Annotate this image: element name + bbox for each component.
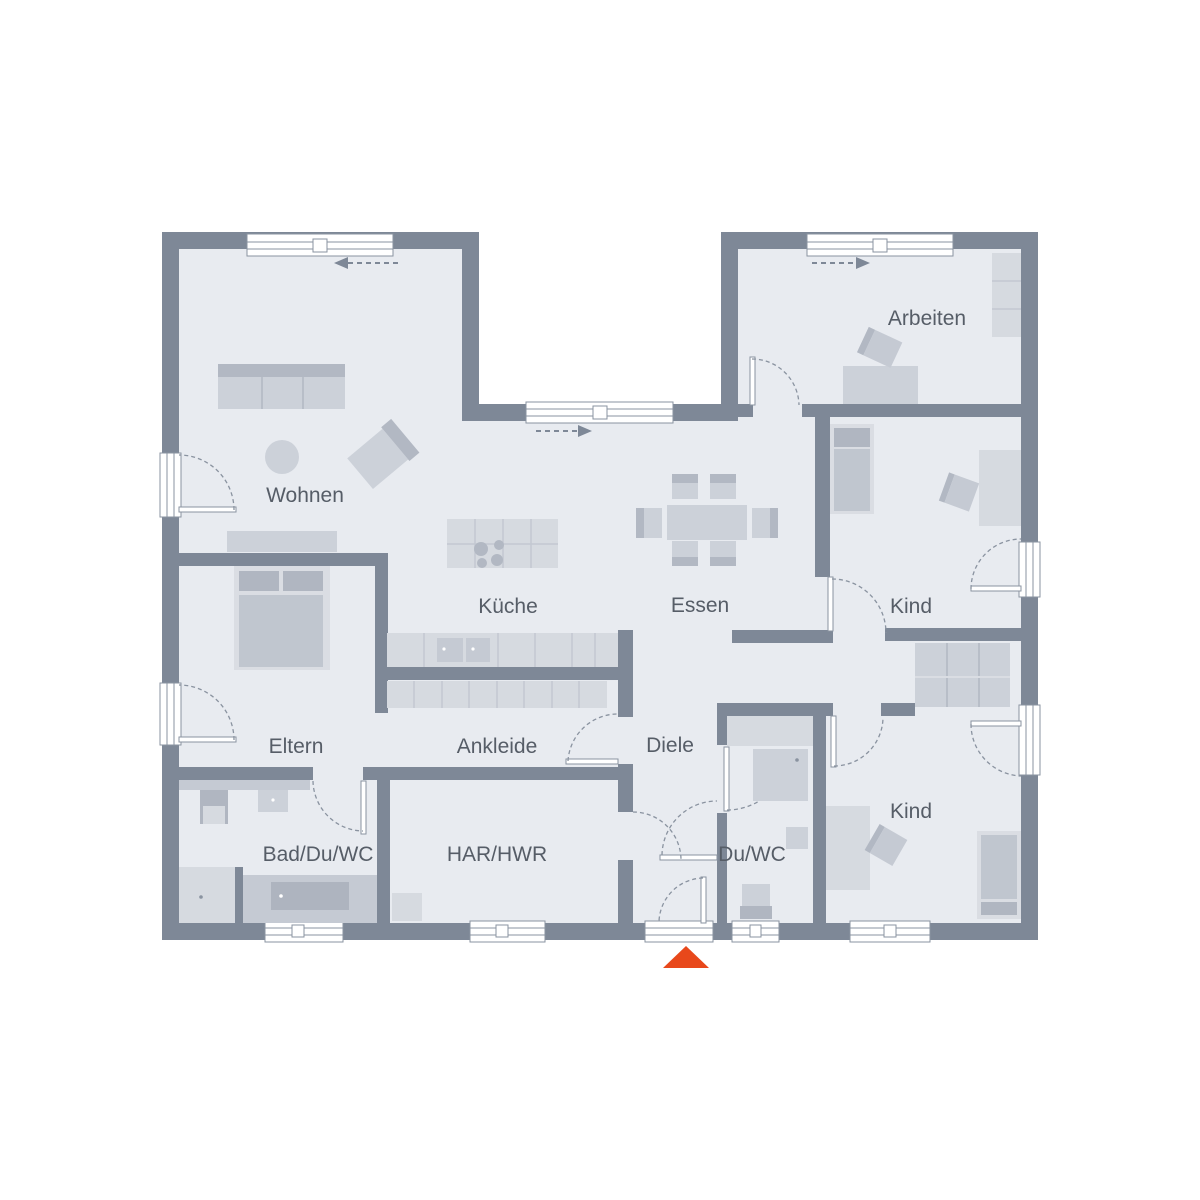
duwc-shower xyxy=(753,749,808,801)
room-label-wohnen: Wohnen xyxy=(266,484,344,507)
duwc-wc xyxy=(742,884,770,908)
duwc-counter xyxy=(727,716,813,746)
floor-plan-canvas: Wohnen Küche Essen Arbeiten Kind Kind El… xyxy=(0,0,1200,1200)
wall-arbeiten-bottom-right xyxy=(802,404,1021,417)
door-leaf-wohnen-window xyxy=(179,507,236,512)
door-leaf-kind-top-window xyxy=(971,586,1021,591)
wall-kueche-ankleide xyxy=(387,667,618,680)
kind-wardrobe xyxy=(915,643,1010,707)
window-essen-notch xyxy=(526,402,673,423)
eltern-bed xyxy=(234,566,330,670)
kind-bottom-bed xyxy=(977,831,1021,919)
duwc-washbasin xyxy=(786,827,808,849)
wall-wohnen-eltern xyxy=(179,553,387,566)
bad-vanity xyxy=(179,780,310,790)
window-bad-bottom xyxy=(265,921,343,942)
wall-bad-har-divider xyxy=(377,780,390,923)
wall-notch-left xyxy=(462,249,479,421)
wall-exterior-left xyxy=(162,232,179,940)
wall-bad-har-top xyxy=(363,767,618,780)
floor-plan-page: Wohnen Küche Essen Arbeiten Kind Kind El… xyxy=(0,0,1200,1200)
window-arbeiten-top xyxy=(807,234,953,256)
office-desk xyxy=(843,366,918,404)
kind-bottom-desk xyxy=(826,806,870,890)
exterior-notch xyxy=(462,232,738,404)
har-appliance xyxy=(392,893,422,921)
room-label-kind-top: Kind xyxy=(890,595,932,618)
wall-arbeiten-bottom-left xyxy=(738,404,753,417)
room-label-diele: Diele xyxy=(646,734,694,757)
sofa xyxy=(218,364,345,409)
ankleide-cabinets xyxy=(387,681,607,708)
room-label-duwc: Du/WC xyxy=(718,843,786,866)
room-label-eltern: Eltern xyxy=(269,735,324,758)
entrance-marker-icon xyxy=(663,946,709,968)
wall-shower-divider xyxy=(235,867,243,923)
kitchen-island xyxy=(447,519,558,568)
dining-table xyxy=(667,505,747,540)
room-label-arbeiten: Arbeiten xyxy=(888,307,966,330)
wall-essen-diele xyxy=(732,630,833,643)
wall-kind-kind xyxy=(885,628,1021,641)
entrance-opening xyxy=(645,921,713,942)
room-label-kueche: Küche xyxy=(478,595,538,618)
kind-top-bed xyxy=(830,424,874,514)
room-label-kind-bottom: Kind xyxy=(890,800,932,823)
sideboard xyxy=(227,531,337,552)
room-label-har: HAR/HWR xyxy=(447,843,547,866)
wall-essen-kind xyxy=(815,417,830,577)
bad-shower xyxy=(179,867,235,923)
wall-eltern-ankleide xyxy=(375,553,388,713)
door-leaf-eltern-window xyxy=(179,737,236,742)
coffee-table xyxy=(265,440,299,474)
room-label-essen: Essen xyxy=(671,594,729,617)
window-duwc-bottom xyxy=(732,921,779,942)
wall-duwc-top xyxy=(717,703,833,716)
wall-duwc-left-upper xyxy=(717,703,727,745)
room-label-ankleide: Ankleide xyxy=(457,735,538,758)
door-leaf-kind-bottom-window xyxy=(971,721,1021,726)
office-shelf xyxy=(992,253,1021,337)
window-kind-bottom xyxy=(850,921,930,942)
wall-duwc-kind xyxy=(813,716,826,923)
window-har-bottom xyxy=(470,921,545,942)
kitchen-counter xyxy=(387,633,618,667)
wall-notch-right xyxy=(721,249,738,421)
wall-kind-bottom-stub xyxy=(881,703,915,716)
window-wohnen-top xyxy=(247,234,393,256)
wall-diele-left-lower xyxy=(618,860,633,923)
kitchen-sink xyxy=(437,638,463,662)
wall-bad-top-left xyxy=(179,767,313,780)
wall-diele-left-upper xyxy=(618,630,633,717)
room-label-bad: Bad/Du/WC xyxy=(263,843,374,866)
kind-top-desk xyxy=(979,450,1021,526)
wall-vestibule-right xyxy=(717,862,727,923)
wall-diele-left-mid xyxy=(618,764,633,812)
